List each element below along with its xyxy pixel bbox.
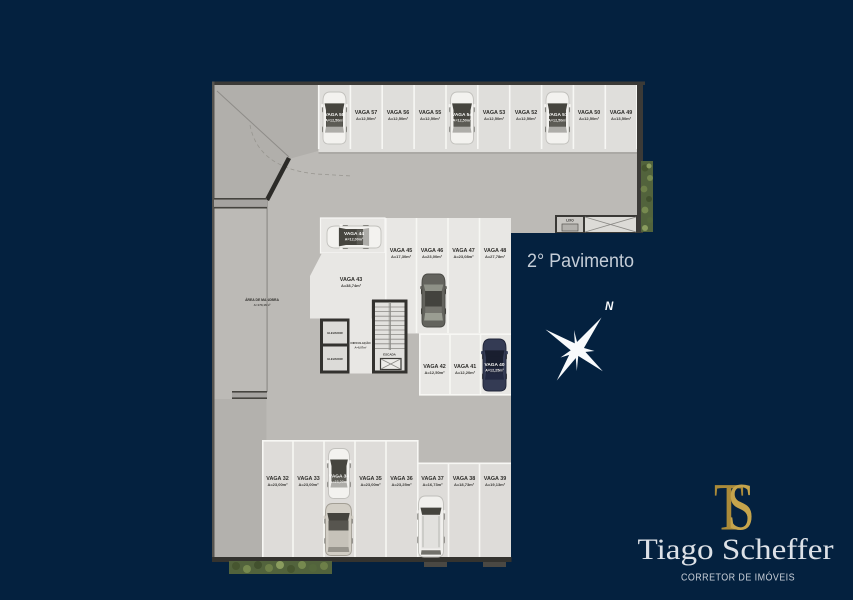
- svg-text:A=12,50m²: A=12,50m²: [516, 116, 537, 121]
- svg-text:A=19,13m²: A=19,13m²: [485, 482, 506, 487]
- svg-text:A=12,20m²: A=12,20m²: [455, 370, 476, 375]
- svg-text:A=23,08m²: A=23,08m²: [453, 254, 474, 259]
- svg-text:CORRETOR DE IMÓVEIS: CORRETOR DE IMÓVEIS: [681, 571, 795, 584]
- svg-text:A=23,00m²: A=23,00m²: [422, 254, 443, 259]
- svg-text:VAGA 34: VAGA 34: [329, 474, 349, 480]
- svg-text:A=16,73m²: A=16,73m²: [422, 482, 443, 487]
- svg-text:A=12,50m²: A=12,50m²: [325, 119, 344, 123]
- svg-text:VAGA 54: VAGA 54: [452, 112, 472, 118]
- svg-text:A=12,50m²: A=12,50m²: [424, 370, 445, 375]
- svg-text:Tiago Scheffer: Tiago Scheffer: [638, 533, 834, 566]
- svg-text:A=38,74m²: A=38,74m²: [341, 283, 362, 288]
- svg-text:A=23,00m²: A=23,00m²: [267, 482, 288, 487]
- svg-text:ÁREA DE MANOBRA: ÁREA DE MANOBRA: [245, 297, 279, 302]
- svg-text:ELEVADOR: ELEVADOR: [327, 331, 342, 335]
- svg-text:A=13,50m²: A=13,50m²: [611, 116, 632, 121]
- svg-text:VAGA 58: VAGA 58: [325, 112, 345, 118]
- svg-text:A=12,00m²: A=12,00m²: [345, 238, 364, 242]
- svg-text:A=23,25m²: A=23,25m²: [391, 482, 412, 487]
- svg-text:A=23,00m²: A=23,00m²: [298, 482, 319, 487]
- svg-text:ESCADA: ESCADA: [383, 353, 397, 357]
- svg-text:VAGA 51: VAGA 51: [548, 112, 568, 118]
- svg-text:A=12,50m²: A=12,50m²: [579, 116, 600, 121]
- svg-text:A=12,50m²: A=12,50m²: [420, 116, 441, 121]
- svg-text:LIXO: LIXO: [566, 219, 574, 223]
- svg-text:A=18,73m²: A=18,73m²: [454, 482, 475, 487]
- svg-text:2° Pavimento: 2° Pavimento: [527, 251, 634, 272]
- svg-text:A=12,50m²: A=12,50m²: [548, 119, 567, 123]
- svg-text:A=23,00m²: A=23,00m²: [360, 482, 381, 487]
- svg-text:A=12,50m²: A=12,50m²: [484, 116, 505, 121]
- svg-text:A=12,50m²: A=12,50m²: [356, 116, 377, 121]
- svg-text:A=17,30m²: A=17,30m²: [391, 254, 412, 259]
- svg-text:VAGA 44: VAGA 44: [344, 231, 364, 237]
- svg-text:A=6,07m²: A=6,07m²: [354, 346, 366, 350]
- svg-text:A=27,78m²: A=27,78m²: [485, 254, 506, 259]
- svg-text:VAGA 40: VAGA 40: [485, 362, 505, 368]
- svg-text:CIRCULAÇÃO: CIRCULAÇÃO: [350, 340, 371, 345]
- svg-text:A=12,50m²: A=12,50m²: [388, 116, 409, 121]
- svg-text:ELEVADOR: ELEVADOR: [327, 357, 342, 361]
- svg-text:A=12,50m²: A=12,50m²: [453, 119, 472, 123]
- svg-text:N: N: [605, 301, 614, 313]
- svg-text:A=170,16m²: A=170,16m²: [254, 303, 271, 307]
- svg-text:A=23,00m²: A=23,00m²: [330, 480, 349, 484]
- svg-text:A=12,25m²: A=12,25m²: [485, 369, 504, 373]
